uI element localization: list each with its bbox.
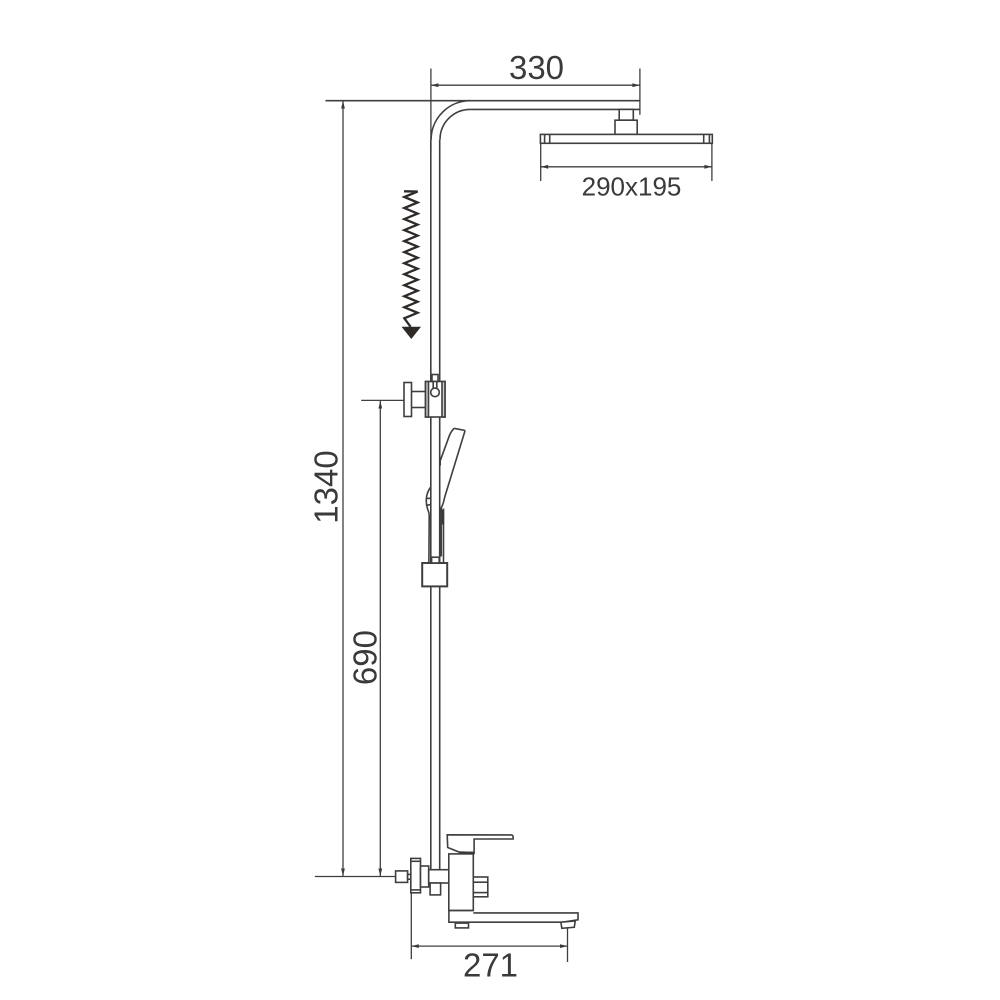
svg-text:1340: 1340 [308,450,345,523]
svg-text:690: 690 [347,630,384,685]
svg-text:290x195: 290x195 [582,171,682,201]
svg-text:330: 330 [509,49,564,86]
svg-text:271: 271 [463,947,518,984]
